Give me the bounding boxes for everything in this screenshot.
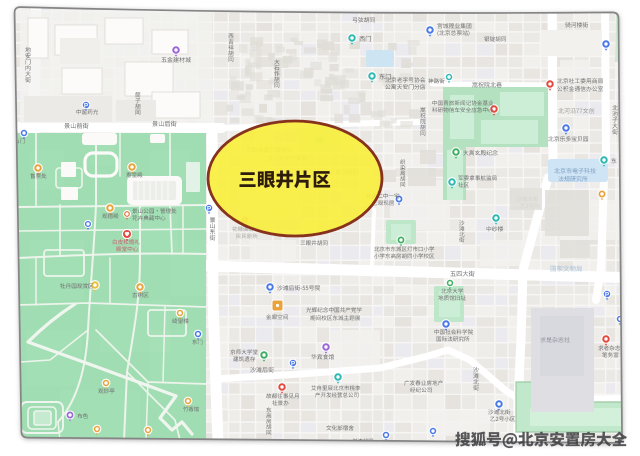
svg-text:P: P	[84, 103, 89, 110]
svg-text:P: P	[207, 206, 212, 213]
svg-text:P: P	[605, 292, 610, 299]
svg-text:P: P	[291, 361, 296, 368]
